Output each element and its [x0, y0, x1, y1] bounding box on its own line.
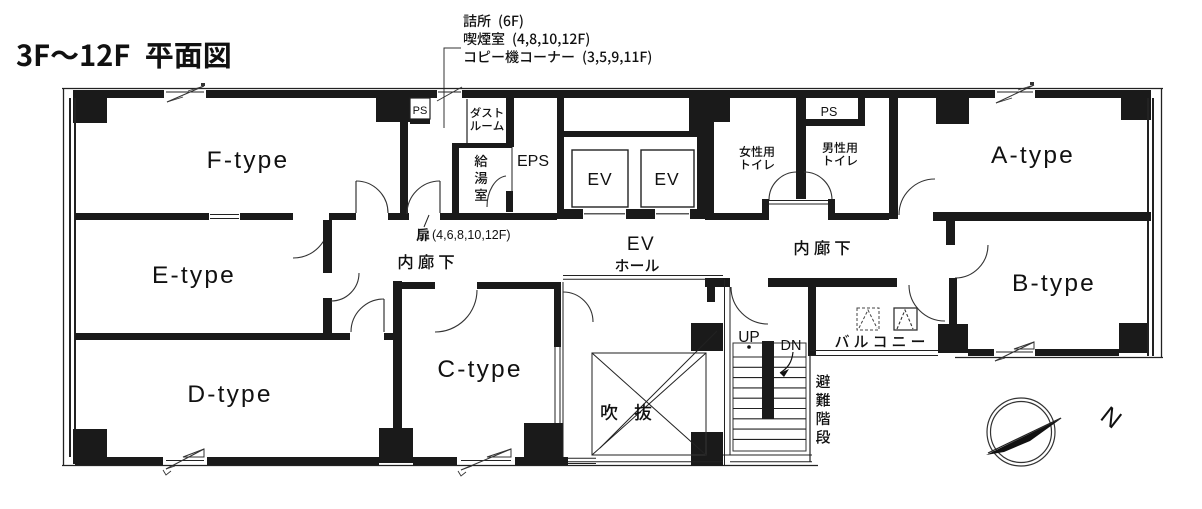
- svg-text:PS: PS: [821, 105, 838, 119]
- svg-text:EV: EV: [654, 169, 679, 189]
- svg-text:A-type: A-type: [991, 142, 1075, 169]
- svg-text:B-type: B-type: [1012, 270, 1096, 297]
- svg-text:E-type: E-type: [152, 262, 236, 289]
- svg-text:EV: EV: [627, 234, 655, 255]
- svg-text:PS: PS: [413, 105, 428, 117]
- svg-text:F-type: F-type: [207, 147, 290, 174]
- svg-text:UP: UP: [738, 329, 760, 346]
- svg-text:(4,6,8,10,12F): (4,6,8,10,12F): [432, 228, 511, 242]
- svg-text:D-type: D-type: [187, 381, 272, 408]
- svg-text:EPS: EPS: [517, 153, 549, 170]
- svg-text:C-type: C-type: [437, 356, 522, 383]
- svg-text:DN: DN: [781, 338, 802, 354]
- svg-text:EV: EV: [587, 169, 612, 189]
